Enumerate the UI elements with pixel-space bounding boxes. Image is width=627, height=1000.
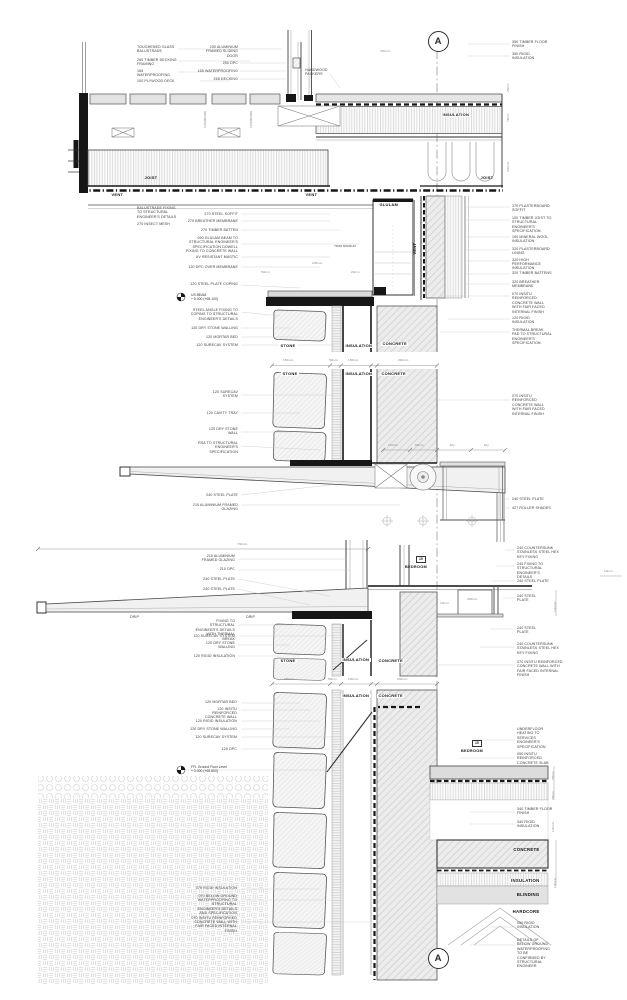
label-hardwood-packers: HARDWOOD PACKERS: [305, 68, 331, 77]
dim-100-min-2: 100MM MIN: [249, 111, 253, 128]
dim-200-b: 200mm: [397, 677, 407, 681]
label-rigid-insulation-3: 120 RIGID INSULATION: [181, 719, 237, 723]
label-toughened-glass-balustrade: TOUGHENED GLASS BALUSTRADE: [137, 45, 177, 54]
stone-header-3: STONE: [279, 659, 297, 663]
label-steel-plate-r1: 240 STEEL PLATE: [517, 579, 563, 583]
label-steel-plate-right: 240 STEEL PLATE: [512, 497, 558, 501]
label-countersunk-hex-2: 240 COUNTERSUNK STAINLESS STEEL HEX KEY …: [517, 642, 561, 655]
label-rigid-insulation-050: 050 RIGID INSULATION: [517, 921, 547, 930]
label-steel-plate-r2: 240 STEEL PLATE: [517, 594, 539, 603]
room-tag-bedroom-1: 15: [416, 556, 426, 563]
label-steel-plate-canopy: 240 STEEL PLATE: [188, 493, 238, 497]
label-insitu-concrete-wall-mid: 070 INSITU REINFORCED CONCRETE WALL WITH…: [512, 394, 552, 416]
label-aluminium-sliding-door: 200 ALUMINIUM FRAMED SLIDING DOOR: [204, 45, 238, 58]
label-insitu-concrete-wall-3: 070 INSITU REINFORCED CONCRETE WALL WITH…: [517, 660, 563, 678]
dim-150-c: 150mm: [284, 677, 294, 681]
label-dpc: 250 DPC: [208, 61, 238, 65]
stone-header-1: STONE: [279, 344, 297, 348]
label-countersunk-hex-1: 240 COUNTERSUNK STAINLESS STEEL HEX KEY …: [517, 546, 561, 559]
concrete-header-2: CONCRETE: [380, 372, 407, 376]
label-waterproofing: 165 WATERPROOFING: [137, 69, 173, 78]
label-high-performance-insulation: 320 HIGH PERFORMANCE INSULATION: [512, 258, 552, 271]
dim-50-a: 50mm: [329, 358, 338, 362]
label-dry-stone-walling-2: 120 DRY STONE WALLING: [205, 641, 235, 650]
label-steel-plate-b: 240 STEEL PLATE: [191, 587, 235, 591]
label-timber-floor-finish-2: 340 TIMBER FLOOR FINISH: [517, 807, 555, 816]
label-mortar-bed-2: 120 MORTAR BED: [181, 700, 237, 704]
min-clearance-note: 75MM MINIMUM: [334, 244, 356, 248]
label-timber-joist: 100 TIMBER JOIST TO STRUCTURAL ENGINEER'…: [512, 216, 552, 234]
label-roller-shades: 427 ROLLER SHADES: [512, 506, 558, 510]
label-dpc-over-membrane: 120 DPC OVER MEMBRANE: [182, 265, 238, 269]
dim-730: 730mm: [237, 542, 247, 546]
label-rigid-insulation-2: 120 RIGID INSULATION: [191, 654, 235, 658]
dim-200-a: 200mm: [398, 358, 408, 362]
label-dpc-210: 210 DPC: [201, 567, 235, 571]
dim-110: 110mm: [388, 443, 398, 447]
label-aluminium-glazing-2: 210 ALUMINIUM FRAMED GLAZING: [199, 554, 235, 563]
concrete-header-4: CONCRETE: [377, 694, 404, 698]
stone-header-2: STONE: [281, 372, 299, 376]
dim-100-min-1: 100MM MIN: [203, 111, 207, 128]
dim-200-plate: 200mm: [467, 597, 477, 601]
label-insitu-concrete-wall: 070 INSITU REINFORCED CONCRETE WALL WITH…: [512, 292, 552, 314]
label-rsa: RSA TO STRUCTURAL ENGINEER'S SPECIFICATI…: [192, 441, 238, 454]
dim-10-a: 10mm: [604, 569, 613, 573]
section-marker-bottom: A: [428, 948, 449, 969]
label-below-ground-waterproofing: 070 BELOW GROUND WATERPROOFING TO STRUCT…: [189, 894, 237, 916]
dim-25-slab: 25mm: [551, 771, 555, 780]
label-timber-battens: 320 TIMBER BATTENS: [512, 271, 556, 275]
dim-25-top: 25mm: [506, 83, 510, 92]
label-breather-membrane: 320 BREATHER MEMBRANE: [512, 280, 552, 289]
label-plasterboard-soffit: 370 PLASTERBOARD SOFFIT: [512, 204, 556, 213]
dim-100-plate: 100mm: [553, 602, 557, 612]
dim-100-slab: 100mm: [551, 822, 555, 832]
label-insitu-concrete-wall-5: 070 INSITU REINFORCED CONCRETE WALL WITH…: [191, 916, 237, 934]
dim-75-slab: 75mm: [551, 791, 555, 800]
joist-label-right: JOIST: [479, 176, 495, 180]
label-surecav-2: 120 SURECAV SYSTEM: [208, 390, 238, 399]
dim-eq-1: EQ: [450, 443, 454, 447]
label-timber-batten: 270 TIMBER BATTEN: [186, 228, 238, 232]
label-decking: 265 DECKING: [208, 77, 238, 81]
label-insitu-concrete-slab: 050 INSITU REINFORCED CONCRETE SLAB: [517, 752, 551, 765]
insulation-header-slab: INSULATION: [510, 879, 541, 884]
label-breather-membrane-parapet: 270 BREATHER MEMBRANE: [182, 219, 238, 223]
dim-50-parapet: 50mm: [261, 270, 270, 274]
vent-label-vertical: VENT: [413, 241, 417, 256]
insulation-label-floor: INSULATION: [441, 113, 471, 117]
dim-90: 90mm: [415, 443, 424, 447]
architectural-detail-sheet: A A TOUGHENED GLASS BALUSTRADE 265 TIMBE…: [0, 0, 627, 1000]
hardcore-header: HARDCORE: [511, 910, 541, 915]
label-plywood-deck: 100 PLYWOOD DECK: [137, 79, 197, 83]
label-surecav: 120 SURECAV SYSTEM: [182, 343, 238, 347]
label-mortar-bed: 120 MORTAR BED: [182, 335, 238, 339]
level-us-beam: US BEAM+ 5.000 (+68.100): [191, 293, 241, 302]
label-timber-decking-framing: 265 TIMBER DECKING FRAMING: [137, 58, 177, 67]
label-plasterboard-lining: 320 PLASTERBOARD LINING: [512, 247, 556, 256]
vent-label-left: VENT: [110, 193, 125, 197]
dim-150-a: 150mm: [283, 358, 293, 362]
dim-50-b: 50mm: [328, 677, 337, 681]
insulation-header-1: INSULATION: [344, 344, 374, 348]
dim-10-b: 10mm: [440, 601, 449, 605]
room-name-bedroom-2: BEDROOM: [461, 749, 483, 753]
label-waterproofing-door: 165 WATERPROOFING: [196, 69, 238, 73]
label-surecav-3: 120 SURECAV SYSTEM: [189, 634, 235, 638]
dim-235: 235mm: [312, 261, 322, 265]
label-waterproofing-confirm: DETAILS OF BELOW GROUND WATERPROOFING TO…: [517, 938, 551, 969]
dim-20-parapet: 20mm: [351, 270, 360, 274]
label-aluminium-glazing-canopy: 210 ALUMINIUM FRAMED GLAZING: [178, 503, 238, 512]
label-underfloor-heating: UNDERFLOOR HEATING TO SERVICES ENGINEER'…: [517, 727, 551, 749]
room-name-bedroom-1: BEDROOM: [405, 565, 427, 569]
label-thermal-break-pad: THERMAL BREAK PAD TO STRUCTURAL ENGINEER…: [512, 328, 552, 346]
room-tag-bedroom-2: 15: [472, 740, 482, 747]
label-balustrade-fixing: BALUSTRADE FIXING TO STRUCTURAL ENGINEER…: [137, 206, 179, 219]
label-steel-soffit: 270 STEEL SOFFIT: [186, 212, 238, 216]
level-ffl: FFL Ground Floor Level+ 3.000 (+65.800): [191, 765, 243, 774]
label-rigid-insulation-070: 070 RIGID INSULATION: [181, 886, 237, 890]
label-steel-plate-a: 240 STEEL PLATE: [191, 577, 235, 581]
glulam-label: GLULAM: [378, 203, 400, 207]
label-drip-2: DRIP: [246, 615, 255, 619]
label-cavity-tray: 120 CAVITY TRAY: [194, 411, 238, 415]
label-rigid-insulation-wall: 120 RIGID INSULATION: [512, 316, 552, 325]
dim-100-b: 100mm: [348, 677, 358, 681]
label-dry-stone-walling-3: 120 DRY STONE WALLING: [181, 727, 237, 731]
insulation-header-4: INSULATION: [341, 694, 371, 698]
vent-label-mid: VENT: [304, 193, 319, 197]
section-marker-top: A: [428, 31, 449, 52]
label-rigid-insulation-340: 340 RIGID INSULATION: [517, 820, 551, 829]
label-steel-plate-coping: 120 STEEL PLATE COPING: [182, 282, 238, 286]
dim-75-top: 75mm: [506, 113, 510, 122]
label-mineral-wool: 100 MINERAL WOOL INSULATION: [512, 235, 552, 244]
label-rigid-insulation-floor: 350 RIGID INSULATION: [512, 52, 552, 61]
insulation-header-2: INSULATION: [344, 372, 374, 376]
label-steel-angle-fixing: STEEL ANGLE FIXING TO COPING TO STRUCTUR…: [182, 308, 238, 321]
label-dry-stone-wall: 120 DRY STONE WALL: [208, 427, 238, 436]
label-dpc-120: 120 DPC: [181, 747, 237, 751]
label-steel-plate-r3: 240 STEEL PLATE: [517, 626, 539, 635]
insulation-header-3: INSULATION: [341, 658, 371, 662]
label-drip-1: DRIP: [130, 615, 139, 619]
dim-100-insulation: 100mm: [553, 878, 557, 888]
label-uv-mastic: UV RESISTANT MASTIC: [186, 255, 238, 259]
dim-150-b: 150mm: [348, 358, 358, 362]
dim-330: 330mm: [380, 49, 390, 53]
label-glulam-beam: 090 GLULAM BEAM TO STRUCTURAL ENGINEER'S…: [182, 236, 238, 254]
label-dry-stone-walling: 120 DRY STONE WALLING: [182, 326, 238, 330]
concrete-header-slab: CONCRETE: [512, 848, 541, 853]
label-surecav-4: 120 SURECAV SYSTEM: [181, 735, 237, 739]
dim-eq-2: EQ: [484, 443, 488, 447]
concrete-header-3: CONCRETE: [377, 659, 404, 663]
blinding-header: BLINDING: [515, 893, 541, 898]
dim-200-top: 200mm: [506, 162, 510, 172]
concrete-header-1: CONCRETE: [381, 342, 408, 346]
label-timber-floor-finish: 350 TIMBER FLOOR FINISH: [512, 40, 554, 49]
label-fixing-structural: 240 FIXING TO STRUCTURAL ENGINEER'S DETA…: [517, 562, 553, 580]
joist-label-left: JOIST: [143, 176, 159, 180]
